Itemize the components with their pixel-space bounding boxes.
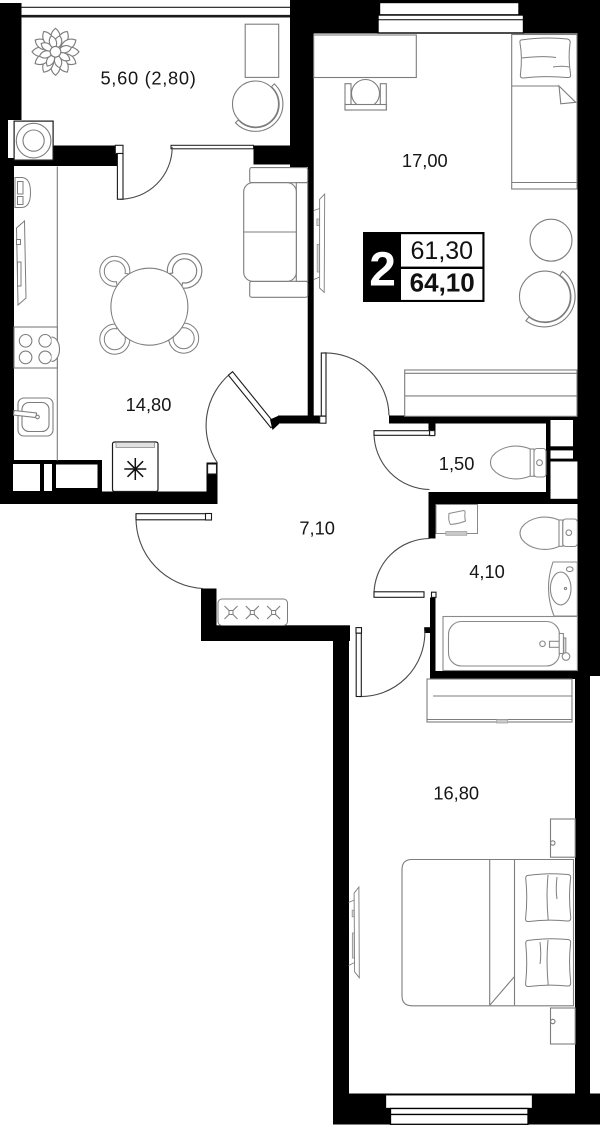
svg-text:5,60 (2,80): 5,60 (2,80)	[100, 68, 196, 89]
svg-text:64,10: 64,10	[410, 267, 475, 297]
svg-text:1,50: 1,50	[439, 453, 475, 474]
svg-text:7,10: 7,10	[299, 517, 335, 538]
svg-text:17,00: 17,00	[402, 150, 448, 171]
svg-text:2: 2	[369, 244, 396, 297]
svg-text:61,30: 61,30	[411, 237, 474, 265]
svg-text:14,80: 14,80	[126, 394, 172, 415]
svg-text:4,10: 4,10	[469, 561, 505, 582]
svg-text:16,80: 16,80	[433, 783, 479, 804]
